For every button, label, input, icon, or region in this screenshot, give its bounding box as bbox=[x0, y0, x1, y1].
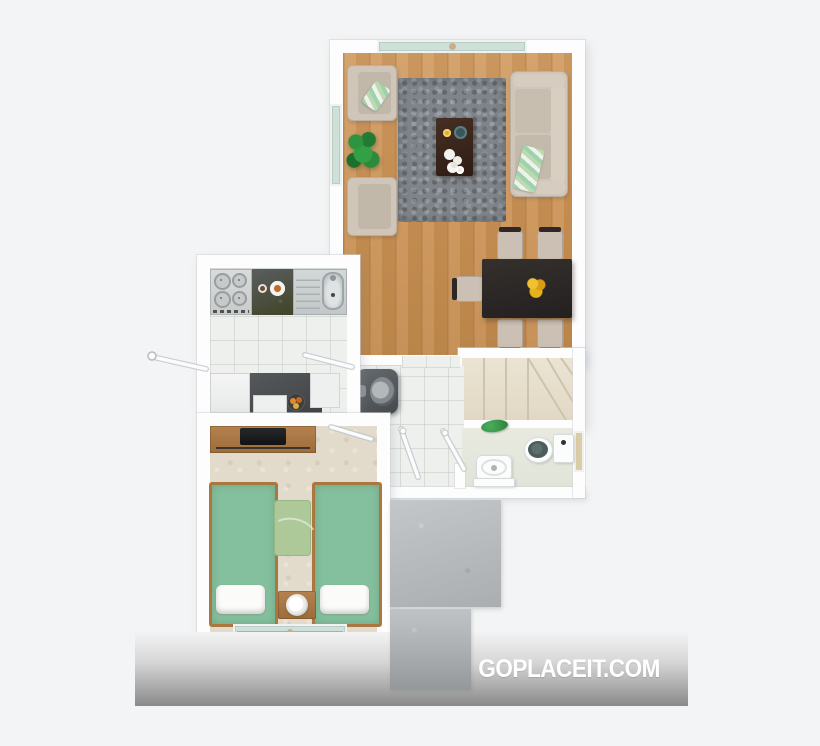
flower-centerpiece bbox=[525, 276, 547, 298]
patio-tile-large bbox=[390, 500, 501, 607]
gas-stove bbox=[210, 269, 252, 315]
burner bbox=[232, 291, 247, 306]
living-dining-room bbox=[330, 40, 585, 365]
hallway-doorway-threshold bbox=[402, 356, 460, 368]
dining-table bbox=[482, 259, 572, 318]
potted-plant bbox=[345, 128, 381, 174]
yellow-dish bbox=[443, 129, 451, 137]
entry-door-knob bbox=[148, 352, 156, 360]
coffee-table bbox=[436, 118, 473, 176]
fruit bbox=[290, 398, 296, 404]
tv bbox=[240, 428, 286, 445]
lamp bbox=[286, 594, 308, 616]
nightstand bbox=[278, 591, 316, 619]
sofa bbox=[510, 71, 568, 197]
stair-tread-lines bbox=[462, 358, 573, 420]
sink-faucet bbox=[491, 465, 497, 471]
granite-counter bbox=[252, 269, 293, 315]
washer-knob bbox=[561, 440, 566, 445]
faucet bbox=[330, 275, 336, 281]
patio-tile-small bbox=[390, 609, 471, 690]
living-room-window-left bbox=[330, 104, 342, 186]
armchair-bottom bbox=[347, 177, 397, 236]
washing-machine bbox=[553, 434, 574, 463]
pillow bbox=[216, 585, 265, 614]
soundbar bbox=[216, 447, 310, 449]
white-dishes bbox=[444, 149, 455, 160]
plate-small bbox=[258, 284, 267, 293]
dining-chair bbox=[537, 319, 563, 348]
bathroom-window bbox=[574, 431, 584, 472]
stove-knobs bbox=[213, 310, 249, 313]
kitchen bbox=[197, 255, 360, 413]
dining-chair bbox=[456, 276, 483, 302]
window-handle bbox=[449, 43, 456, 50]
plate-food bbox=[274, 285, 281, 292]
bedroom bbox=[197, 413, 390, 645]
refrigerator bbox=[210, 373, 250, 413]
stair-treads bbox=[462, 358, 573, 420]
water-heater bbox=[356, 369, 398, 414]
dining-chair bbox=[537, 231, 563, 260]
green-rug bbox=[274, 500, 311, 556]
cup-rings bbox=[456, 166, 464, 174]
dining-chair bbox=[497, 231, 523, 260]
watermark-text: GOPLACEIT.COM bbox=[478, 655, 688, 684]
burner bbox=[214, 291, 231, 308]
toilet-seat bbox=[528, 441, 548, 458]
sink-basin bbox=[322, 272, 344, 310]
sofa-seat-cushion bbox=[515, 89, 551, 133]
drain bbox=[331, 293, 335, 297]
burner bbox=[214, 273, 231, 290]
tv-dresser bbox=[210, 426, 316, 453]
armchair-top bbox=[347, 65, 397, 121]
single-bed-left bbox=[209, 482, 278, 627]
sink-counter bbox=[293, 269, 347, 315]
pillow bbox=[320, 585, 369, 614]
single-bed-right bbox=[312, 482, 382, 627]
burner bbox=[232, 273, 247, 288]
right-wall bbox=[573, 348, 585, 498]
floor-plan-image: GOPLACEIT.COM bbox=[0, 0, 820, 746]
fruit-bowl bbox=[287, 393, 305, 411]
armchair-seat bbox=[358, 184, 391, 229]
kitchen-cabinet bbox=[310, 373, 340, 408]
living-room-window-top bbox=[377, 40, 527, 53]
bathroom-door-jamb bbox=[455, 464, 465, 488]
sink-plinth bbox=[473, 478, 515, 487]
toilet bbox=[524, 437, 553, 463]
drawer-unit bbox=[253, 395, 287, 413]
drainboard bbox=[296, 275, 320, 309]
staircase bbox=[458, 348, 585, 428]
plate-large bbox=[270, 281, 285, 296]
sofa-armrest-top bbox=[513, 74, 565, 87]
teal-plate bbox=[454, 126, 467, 139]
bathroom-bottom-wall bbox=[388, 487, 585, 498]
sofa-back-cushion bbox=[551, 85, 565, 183]
dining-chair bbox=[497, 319, 523, 348]
heater-drum bbox=[370, 377, 396, 406]
